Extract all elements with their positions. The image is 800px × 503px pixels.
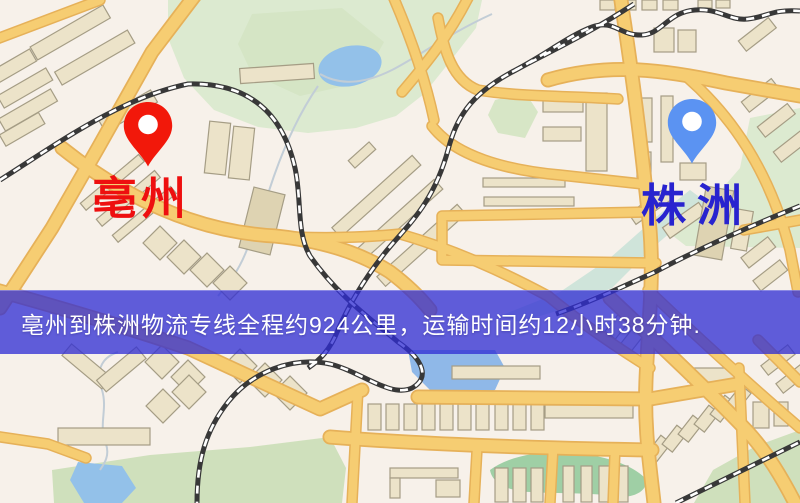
origin-city-label: 亳州 bbox=[92, 176, 190, 221]
map-canvas bbox=[0, 0, 800, 503]
destination-pin-hole bbox=[682, 112, 702, 132]
map-screenshot: 亳州到株洲物流专线全程约924公里，运输时间约12小时38分钟. 亳州 株洲 bbox=[0, 0, 800, 503]
route-info-banner: 亳州到株洲物流专线全程约924公里，运输时间约12小时38分钟. bbox=[0, 290, 800, 354]
destination-city-label: 株洲 bbox=[641, 183, 753, 228]
route-info-text: 亳州到株洲物流专线全程约924公里，运输时间约12小时38分钟. bbox=[0, 306, 701, 340]
origin-pin-hole bbox=[138, 115, 158, 135]
origin-map-pin-icon[interactable] bbox=[123, 101, 173, 167]
destination-map-pin-icon[interactable] bbox=[667, 98, 717, 164]
